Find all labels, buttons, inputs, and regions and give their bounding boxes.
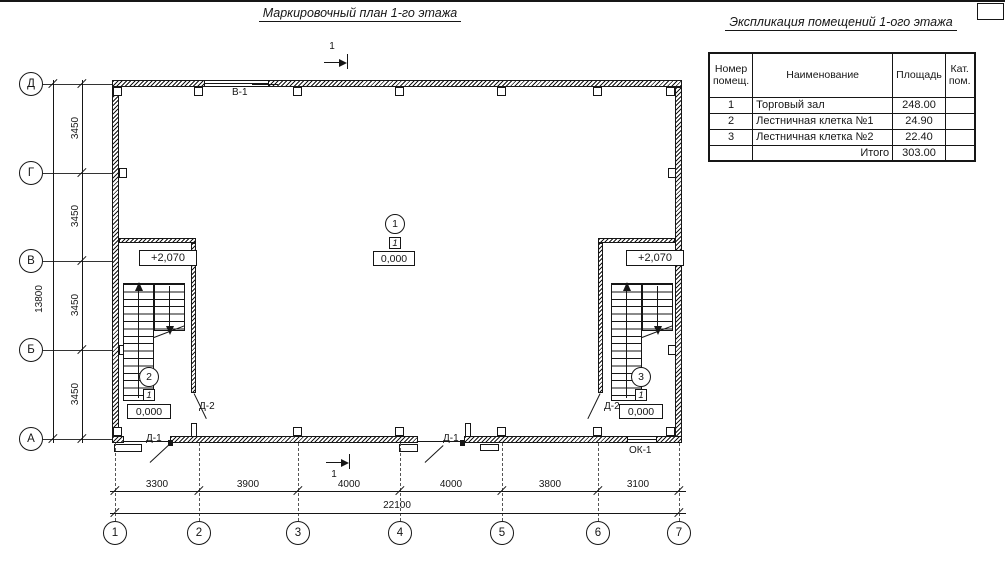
door-d1-leader (150, 445, 169, 463)
level-mark: 0,000 (127, 404, 171, 419)
pier (593, 87, 602, 96)
pier (113, 427, 122, 436)
wall-bottom-seg3 (464, 436, 628, 443)
room-area: 22.40 (893, 129, 946, 145)
dim-value: 4000 (319, 480, 379, 490)
level-mark: 0,000 (373, 251, 415, 266)
table-header-row: Номер помещ. Наименование Площадь Кат. п… (709, 53, 975, 97)
dim-line-total-v (53, 80, 54, 443)
axis-bubble-col: 3 (286, 521, 310, 545)
table-total-row: Итого 303.00 (709, 145, 975, 161)
table-row: 3 Лестничная клетка №2 22.40 (709, 129, 975, 145)
stair1-down-arrowhead (166, 326, 174, 335)
dim-value: 3100 (608, 480, 668, 490)
axis-bubble-row: Г (19, 161, 43, 185)
pier (666, 427, 675, 436)
col-header-name: Наименование (753, 53, 893, 97)
wall-left (112, 87, 119, 443)
total-label: Итого (753, 145, 893, 161)
stair2-left-wall (598, 243, 603, 393)
entrance-step (480, 444, 499, 451)
dim-value: 3300 (127, 480, 187, 490)
room-area: 24.90 (893, 113, 946, 129)
pier (593, 427, 602, 436)
section-arrowhead (339, 59, 347, 67)
dim-value: 3900 (218, 480, 278, 490)
pier (395, 427, 404, 436)
col-header-cat: Кат. пом. (945, 53, 974, 97)
axis-line (598, 443, 599, 521)
dim-value: 3450 (71, 374, 81, 414)
wall-top-right (268, 80, 682, 87)
pier (113, 87, 122, 96)
door-hinge-block (460, 440, 465, 446)
pier (497, 427, 506, 436)
pier (119, 168, 127, 178)
room-name: Лестничная клетка №2 (753, 129, 893, 145)
door-d1-label: Д-1 (146, 433, 162, 444)
axis-bubble-col: 6 (586, 521, 610, 545)
stair2-door-leaf-line (587, 393, 600, 419)
axis-bubble-row: А (19, 427, 43, 451)
axis-line (502, 443, 503, 521)
dim-line-total-h (110, 513, 686, 514)
pier (668, 168, 676, 178)
col-header-area: Площадь (893, 53, 946, 97)
pier (395, 87, 404, 96)
dim-total-value: 22100 (367, 501, 427, 511)
pier (668, 345, 676, 355)
room-cat (945, 129, 974, 145)
room-number: 3 (709, 129, 753, 145)
axis-bubble-col: 4 (388, 521, 412, 545)
axis-line (115, 443, 116, 521)
wall-bottom-seg1 (112, 436, 124, 443)
dim-value: 3450 (71, 285, 81, 325)
axis-bubble-col: 5 (490, 521, 514, 545)
floor-type-mark: 1 (635, 389, 647, 401)
wall-bottom-seg2 (170, 436, 418, 443)
pier (194, 87, 203, 96)
plan-title: Маркировочный план 1-го этажа (240, 6, 480, 20)
stair1-down-arrow (169, 286, 170, 328)
pier (497, 87, 506, 96)
room-number: 1 (709, 97, 753, 113)
section-mark-label: 1 (326, 41, 338, 52)
stair1-up-arrowhead (135, 282, 143, 291)
pier (293, 427, 302, 436)
drawing-sheet: Маркировочный план 1-го этажа Экспликаци… (0, 0, 1005, 565)
axis-bubble-col: 2 (187, 521, 211, 545)
table-row: 1 Торговый зал 248.00 (709, 97, 975, 113)
stair2-up-arrow (626, 289, 627, 398)
pier (666, 87, 675, 96)
room-cat (945, 113, 974, 129)
dim-value: 3450 (71, 108, 81, 148)
section-arrowhead (341, 459, 349, 467)
door-d1-leader (425, 445, 444, 463)
window-ok1 (628, 436, 656, 443)
axis-line (199, 443, 200, 521)
axis-bubble-col: 1 (103, 521, 127, 545)
col-header-number: Номер помещ. (709, 53, 753, 97)
room-marker-circle: 1 (385, 214, 405, 234)
wall-bottom-seg4 (656, 436, 682, 443)
section-cut-bar (347, 54, 348, 69)
stair2-down-arrowhead (654, 326, 662, 335)
window-ok1-label: ОК-1 (629, 445, 652, 456)
room-marker-circle: 2 (139, 367, 159, 387)
door-d1-label: Д-1 (443, 433, 459, 444)
door-leaf (465, 423, 471, 437)
explication-title: Экспликация помещений 1-ого этажа (706, 15, 976, 29)
axis-line (298, 443, 299, 521)
room-name: Лестничная клетка №1 (753, 113, 893, 129)
room-area: 248.00 (893, 97, 946, 113)
explication-table: Номер помещ. Наименование Площадь Кат. п… (708, 52, 976, 162)
sheet-corner-box (977, 3, 1004, 20)
dim-value: 3450 (71, 196, 81, 236)
axis-bubble-row: Д (19, 72, 43, 96)
wall-top-left (112, 80, 205, 87)
room-name: Торговый зал (753, 97, 893, 113)
stair2-top-wall (598, 238, 675, 243)
stair2-down-arrow (657, 286, 658, 328)
room-marker-circle: 3 (631, 367, 651, 387)
floor-type-mark: 1 (389, 237, 401, 249)
axis-bubble-col: 7 (667, 521, 691, 545)
stair1-top-wall (119, 238, 196, 243)
axis-line (679, 443, 680, 521)
elevation-mark: +2,070 (139, 250, 197, 266)
dim-total-value: 13800 (35, 274, 45, 324)
floor-type-mark: 1 (143, 389, 155, 401)
level-mark: 0,000 (619, 404, 663, 419)
axis-bubble-row: Б (19, 338, 43, 362)
door-d2-label: Д-2 (199, 401, 215, 412)
door-d2-label: Д-2 (604, 401, 620, 412)
sheet-bottom-border (0, 0, 1005, 1)
stair1-up-arrow (138, 289, 139, 398)
table-row: 2 Лестничная клетка №1 24.90 (709, 113, 975, 129)
room-cat (945, 97, 974, 113)
elevation-mark: +2,070 (626, 250, 684, 266)
window-v1-label: В-1 (232, 87, 248, 98)
section-cut-bar (349, 454, 350, 469)
dim-value: 3800 (520, 480, 580, 490)
total-area: 303.00 (893, 145, 946, 161)
pier (293, 87, 302, 96)
entrance-step (114, 444, 142, 452)
door-leaf (191, 423, 197, 437)
window-v1-leader (252, 84, 278, 85)
axis-bubble-row: В (19, 249, 43, 273)
entrance-step (399, 444, 418, 452)
room-number: 2 (709, 113, 753, 129)
dim-value: 4000 (421, 480, 481, 490)
stair2-up-arrowhead (623, 282, 631, 291)
